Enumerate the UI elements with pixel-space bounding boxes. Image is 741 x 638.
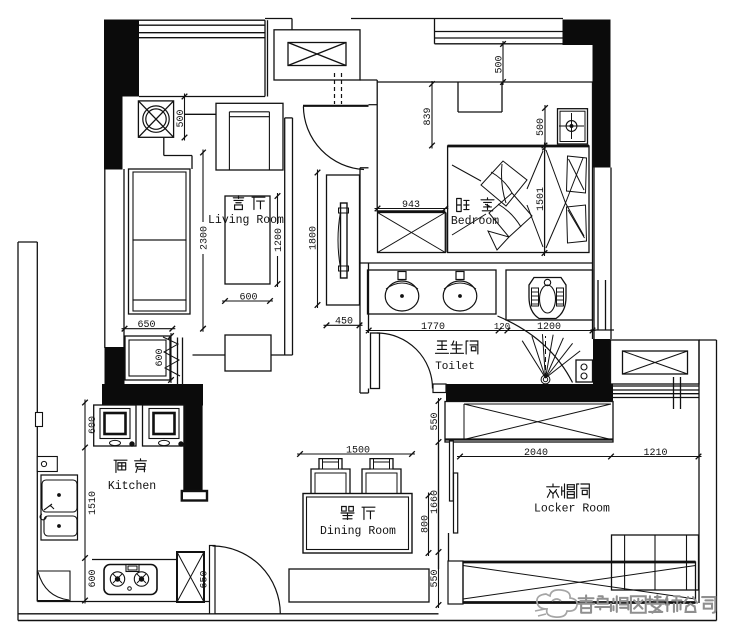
svg-text:650: 650 [137, 320, 155, 331]
svg-text:1210: 1210 [643, 448, 667, 459]
svg-text:550: 550 [430, 412, 441, 430]
svg-text:943: 943 [402, 200, 420, 211]
svg-text:500: 500 [536, 118, 547, 136]
svg-text:1200: 1200 [537, 322, 561, 333]
svg-text:120: 120 [494, 322, 510, 332]
svg-text:839: 839 [423, 107, 434, 125]
svg-text:1770: 1770 [421, 322, 445, 333]
svg-text:450: 450 [335, 317, 353, 328]
svg-text:1510: 1510 [88, 491, 99, 515]
svg-text:Locker Room: Locker Room [534, 503, 610, 516]
svg-text:600: 600 [239, 293, 257, 304]
svg-text:2040: 2040 [524, 448, 548, 459]
svg-text:600: 600 [155, 348, 166, 366]
svg-text:1800: 1800 [309, 226, 320, 250]
svg-text:550: 550 [430, 569, 441, 587]
svg-text:500: 500 [495, 55, 506, 73]
svg-text:1200: 1200 [274, 228, 285, 252]
svg-text:Dining Room: Dining Room [320, 525, 396, 538]
svg-text:500: 500 [176, 109, 187, 127]
svg-text:1660: 1660 [430, 490, 441, 514]
svg-text:600: 600 [88, 569, 99, 587]
svg-text:1500: 1500 [346, 446, 370, 457]
svg-text:1501: 1501 [536, 187, 547, 211]
svg-text:600: 600 [88, 416, 99, 434]
svg-text:Toilet: Toilet [435, 361, 475, 373]
svg-text:800: 800 [421, 515, 432, 533]
svg-text:Bedroom: Bedroom [451, 215, 499, 228]
svg-text:650: 650 [200, 570, 211, 588]
svg-text:2300: 2300 [200, 226, 211, 250]
svg-text:Kitchen: Kitchen [108, 480, 156, 493]
